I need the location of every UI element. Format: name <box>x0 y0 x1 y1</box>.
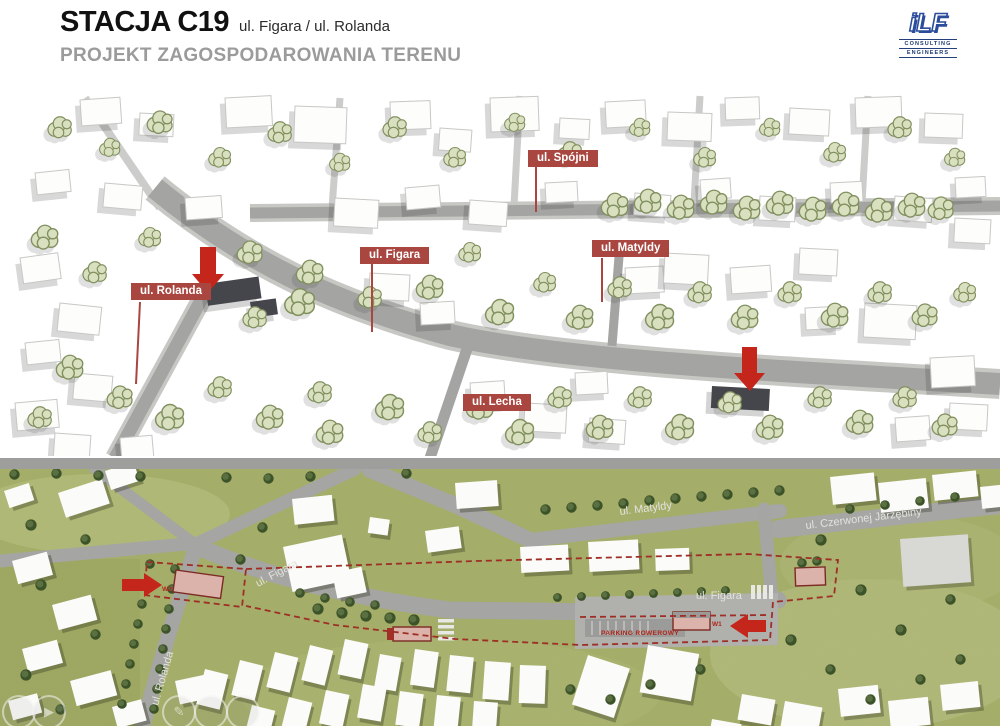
station-entrance-mid <box>387 627 431 641</box>
street-label-lecha: ul. Lecha <box>463 394 531 411</box>
plan-street-figara-east: ul. Figara <box>696 590 743 602</box>
header: STACJA C19 ul. Figara / ul. Rolanda PROJ… <box>60 6 461 67</box>
annotation-w1: W1 <box>712 621 722 628</box>
street-label-rolanda: ul. Rolanda <box>131 283 211 300</box>
site-plan-map: ul. Matyldy ul. Czerwonej Jarzębiny ul. … <box>0 469 1000 726</box>
viewer-control-5-icon[interactable] <box>226 695 260 726</box>
logo-caption-2: ENGINEERS <box>899 49 957 58</box>
station-entrance-w1 <box>673 612 710 630</box>
annotation-w2: W2 <box>162 586 172 593</box>
page-title-streets: ul. Figara / ul. Rolanda <box>239 18 390 35</box>
slide: STACJA C19 ul. Figara / ul. Rolanda PROJ… <box>0 0 1000 726</box>
ilf-logo-icon: iLF <box>899 10 957 36</box>
company-logo: iLF CONSULTING ENGINEERS <box>899 10 957 58</box>
viewer-control-4-icon[interactable] <box>194 695 228 726</box>
street-label-matyldy: ul. Matyldy <box>592 240 669 257</box>
viewer-control-1-icon[interactable] <box>2 695 36 726</box>
viewer-control-play-icon[interactable]: ▶ <box>32 695 66 726</box>
page-title: STACJA C19 <box>60 6 229 39</box>
annotation-parking-rowerowy: PARKING ROWEROWY <box>601 630 679 637</box>
page-subtitle: PROJEKT ZAGOSPODAROWANIA TERENU <box>60 45 461 67</box>
street-label-figara: ul. Figara <box>360 247 429 264</box>
street-label-spojni: ul. Spójni <box>528 150 598 167</box>
logo-caption-1: CONSULTING <box>899 40 957 49</box>
viewer-controls: ▶ ✎ <box>0 695 340 726</box>
viewer-control-pencil-icon[interactable]: ✎ <box>162 695 196 726</box>
